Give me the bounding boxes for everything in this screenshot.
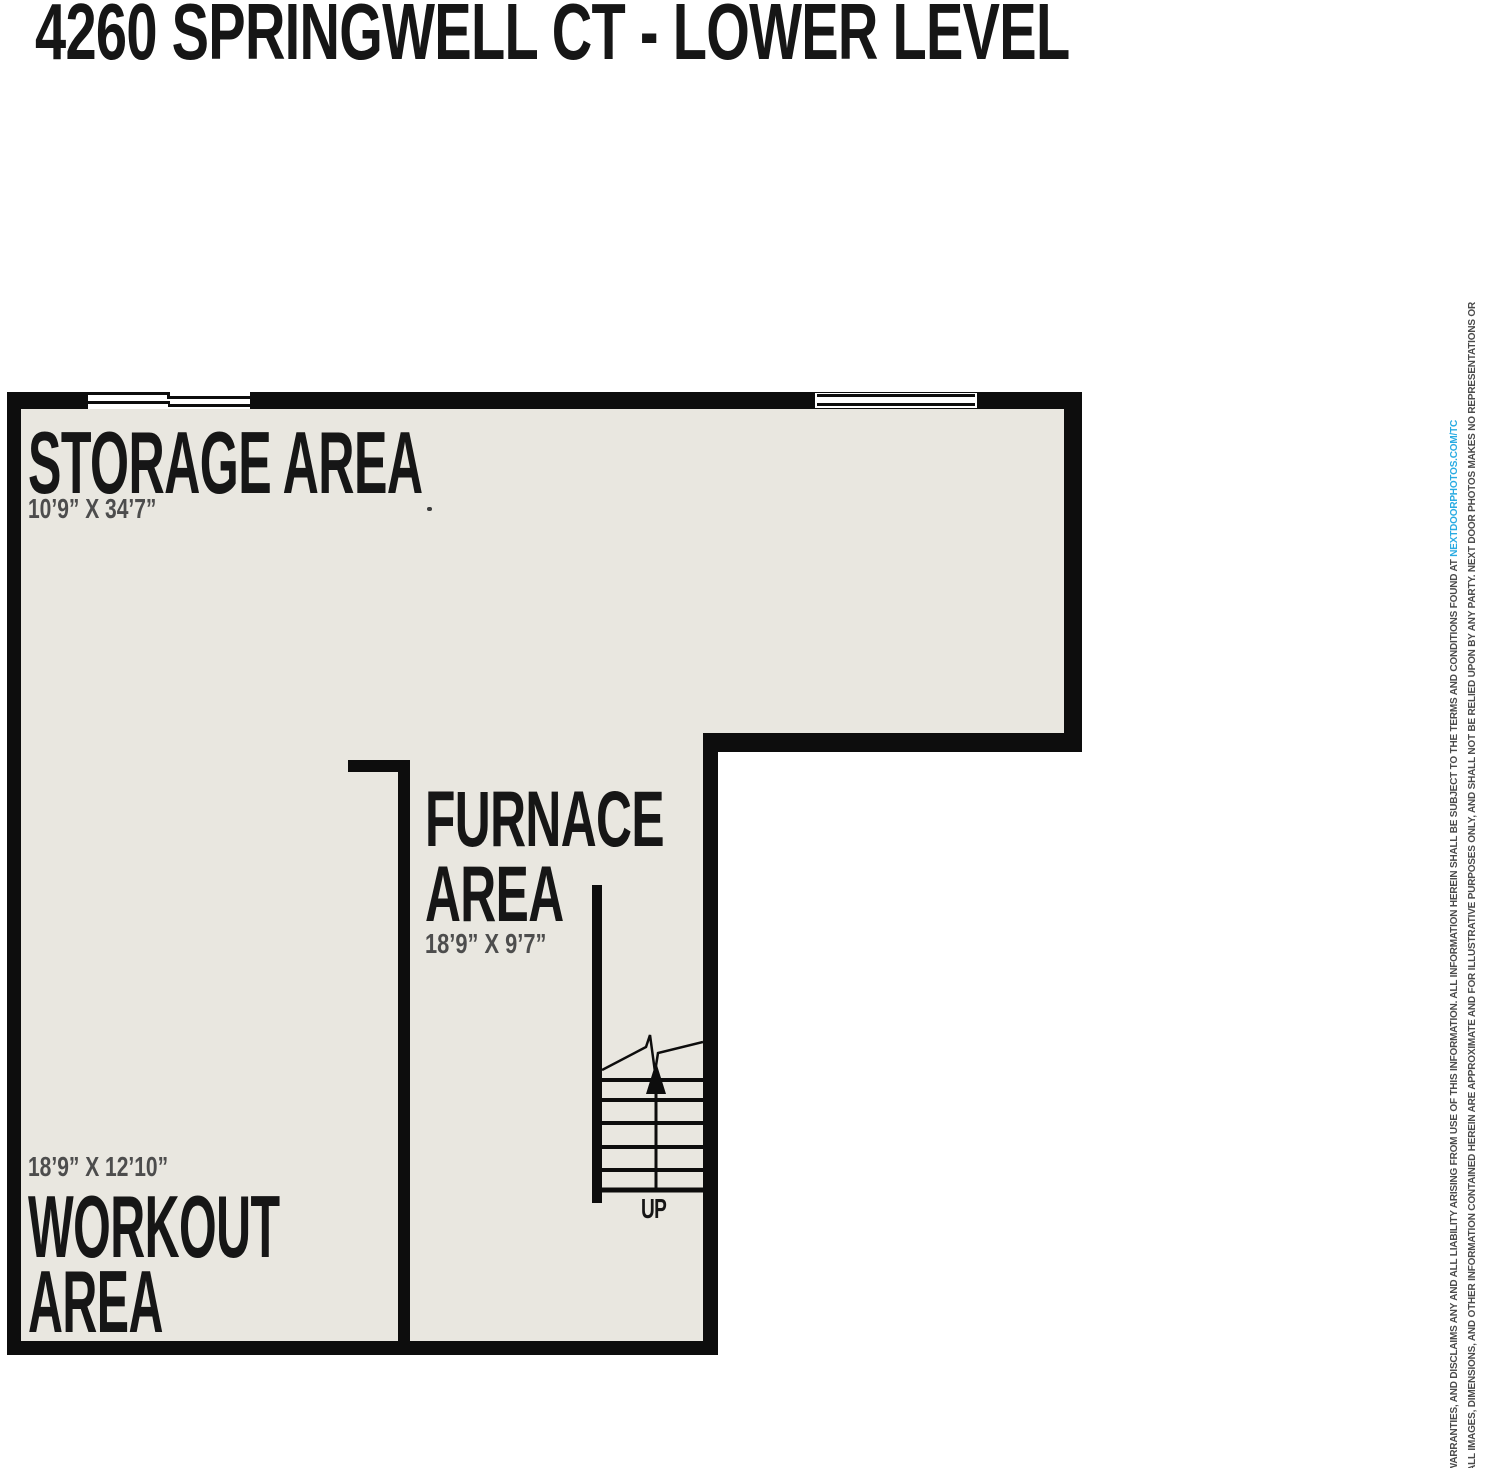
stair-break-line: [602, 1035, 703, 1072]
wall-left: [7, 392, 21, 1355]
window-right-line: [817, 403, 975, 406]
furnace-area-label-line1: FURNACE: [425, 779, 664, 858]
wall-column-right: [703, 733, 718, 1355]
window-left-line: [168, 396, 250, 399]
disclaimer-line-2: WARRANTIES, AND DISCLAIMS ANY AND ALL LI…: [1448, 420, 1461, 1468]
stairs-up-label: UP: [641, 1195, 666, 1223]
window-left-line: [88, 401, 170, 404]
window-left-line: [168, 404, 250, 407]
wall-right-upper: [1064, 392, 1082, 752]
window-left-line: [88, 392, 170, 395]
window-left-step: [167, 392, 170, 399]
disclaimer-terms-link: NEXTDOORPHOTOS.COM/TC: [1449, 420, 1460, 557]
wall-stairwell: [592, 885, 602, 1203]
disclaimer-line-1-text: ALL IMAGES, DIMENSIONS, AND OTHER INFORM…: [1467, 302, 1478, 1468]
disclaimer-line-2-text: WARRANTIES, AND DISCLAIMS ANY AND ALL LI…: [1449, 556, 1460, 1468]
wall-notch-horizontal: [703, 733, 1082, 752]
workout-area-label-line2: AREA: [28, 1258, 163, 1346]
stairs: [602, 1030, 703, 1205]
disclaimer-line-1: ALL IMAGES, DIMENSIONS, AND OTHER INFORM…: [1466, 302, 1479, 1468]
window-right-line: [817, 394, 975, 397]
furnace-area-dimensions: 18’9” X 9’7”: [425, 930, 546, 958]
storage-area-dimensions: 10’9” X 34’7”: [28, 495, 156, 523]
page-title: 4260 SPRINGWELL CT - LOWER LEVEL: [35, 0, 1069, 72]
wall-furnace-vertical: [398, 772, 410, 1341]
wall-furnace-stub-horizontal: [348, 760, 410, 772]
furnace-area-label-line2: AREA: [425, 854, 564, 933]
stray-mark: [427, 507, 432, 511]
floorplan-page: 4260 SPRINGWELL CT - LOWER LEVEL: [0, 0, 1489, 1468]
